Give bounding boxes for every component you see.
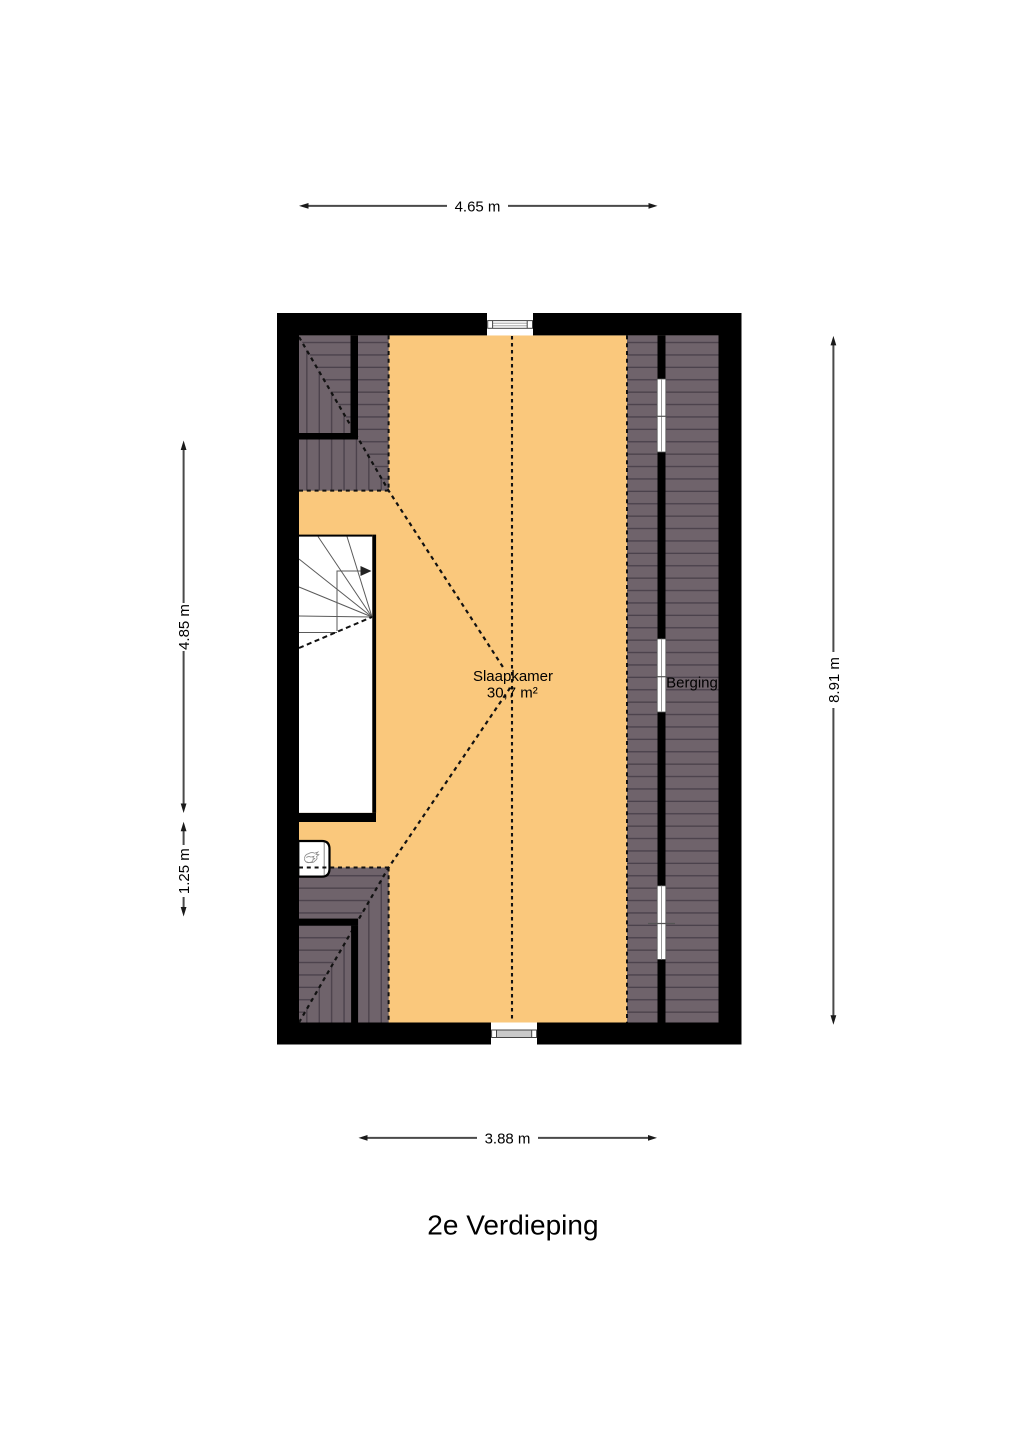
- svg-text:8.91 m: 8.91 m: [826, 657, 843, 703]
- svg-text:2e Verdieping: 2e Verdieping: [427, 1209, 598, 1240]
- svg-text:4.65 m: 4.65 m: [455, 198, 501, 215]
- svg-text:Berging: Berging: [666, 675, 718, 692]
- svg-text:4.85 m: 4.85 m: [176, 604, 193, 650]
- svg-text:Slaapkamer: Slaapkamer: [473, 668, 553, 685]
- svg-text:1.25 m: 1.25 m: [176, 848, 193, 894]
- svg-text:30,7 m²: 30,7 m²: [487, 685, 538, 702]
- svg-text:3.88 m: 3.88 m: [485, 1130, 531, 1147]
